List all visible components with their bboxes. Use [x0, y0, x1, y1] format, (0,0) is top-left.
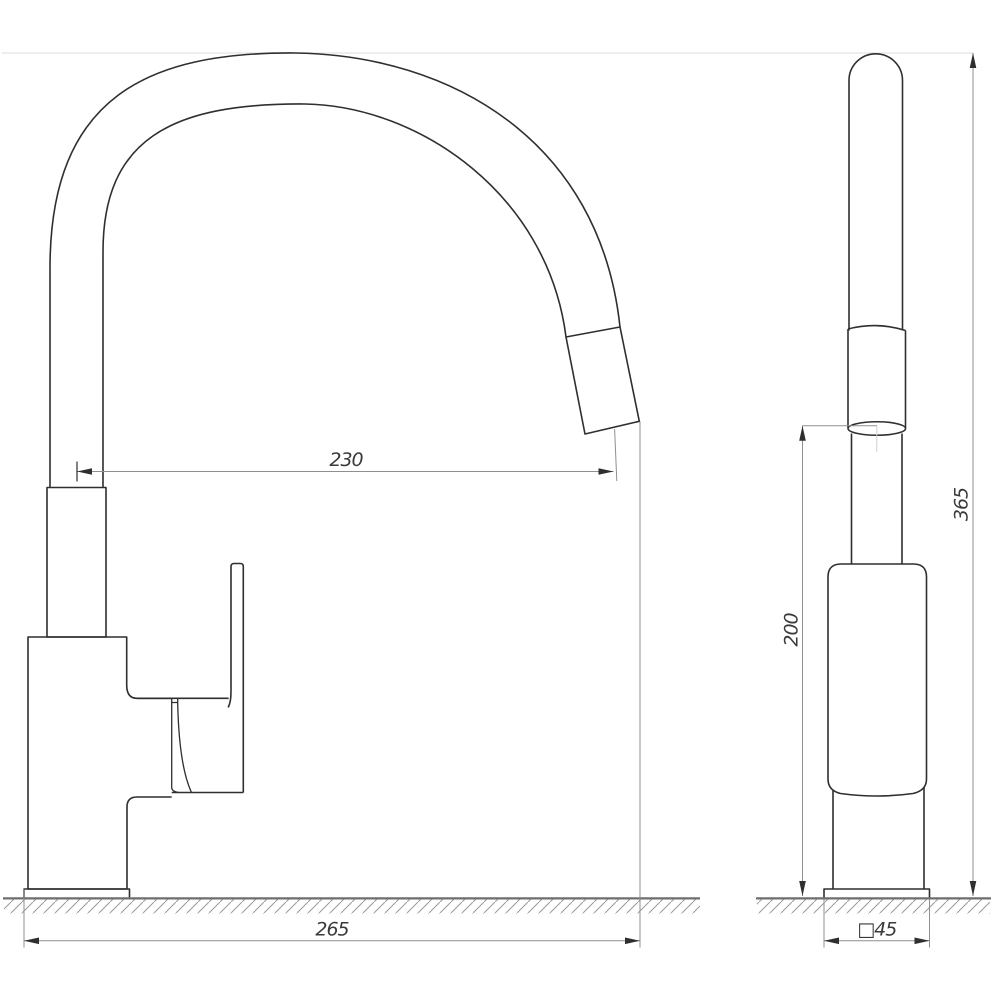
dim-label-overall-height: 365 — [951, 487, 973, 521]
dim-label-spout-reach: 230 — [329, 449, 363, 471]
riser-shoulder — [47, 488, 106, 638]
dim-label-outlet-height: 200 — [781, 612, 803, 646]
canvas-background — [0, 0, 1000, 1000]
hatch-area-right — [757, 899, 990, 914]
dim-label-base-width: □45 — [857, 919, 897, 941]
hatch-area-left — [4, 899, 700, 914]
technical-drawing: 230 265 200 365 — [0, 0, 1000, 1000]
mounting-surface — [3, 898, 991, 913]
base-flange-front — [824, 889, 930, 898]
faucet-body-front — [828, 564, 927, 796]
dim-label-overall-length: 265 — [315, 919, 349, 941]
